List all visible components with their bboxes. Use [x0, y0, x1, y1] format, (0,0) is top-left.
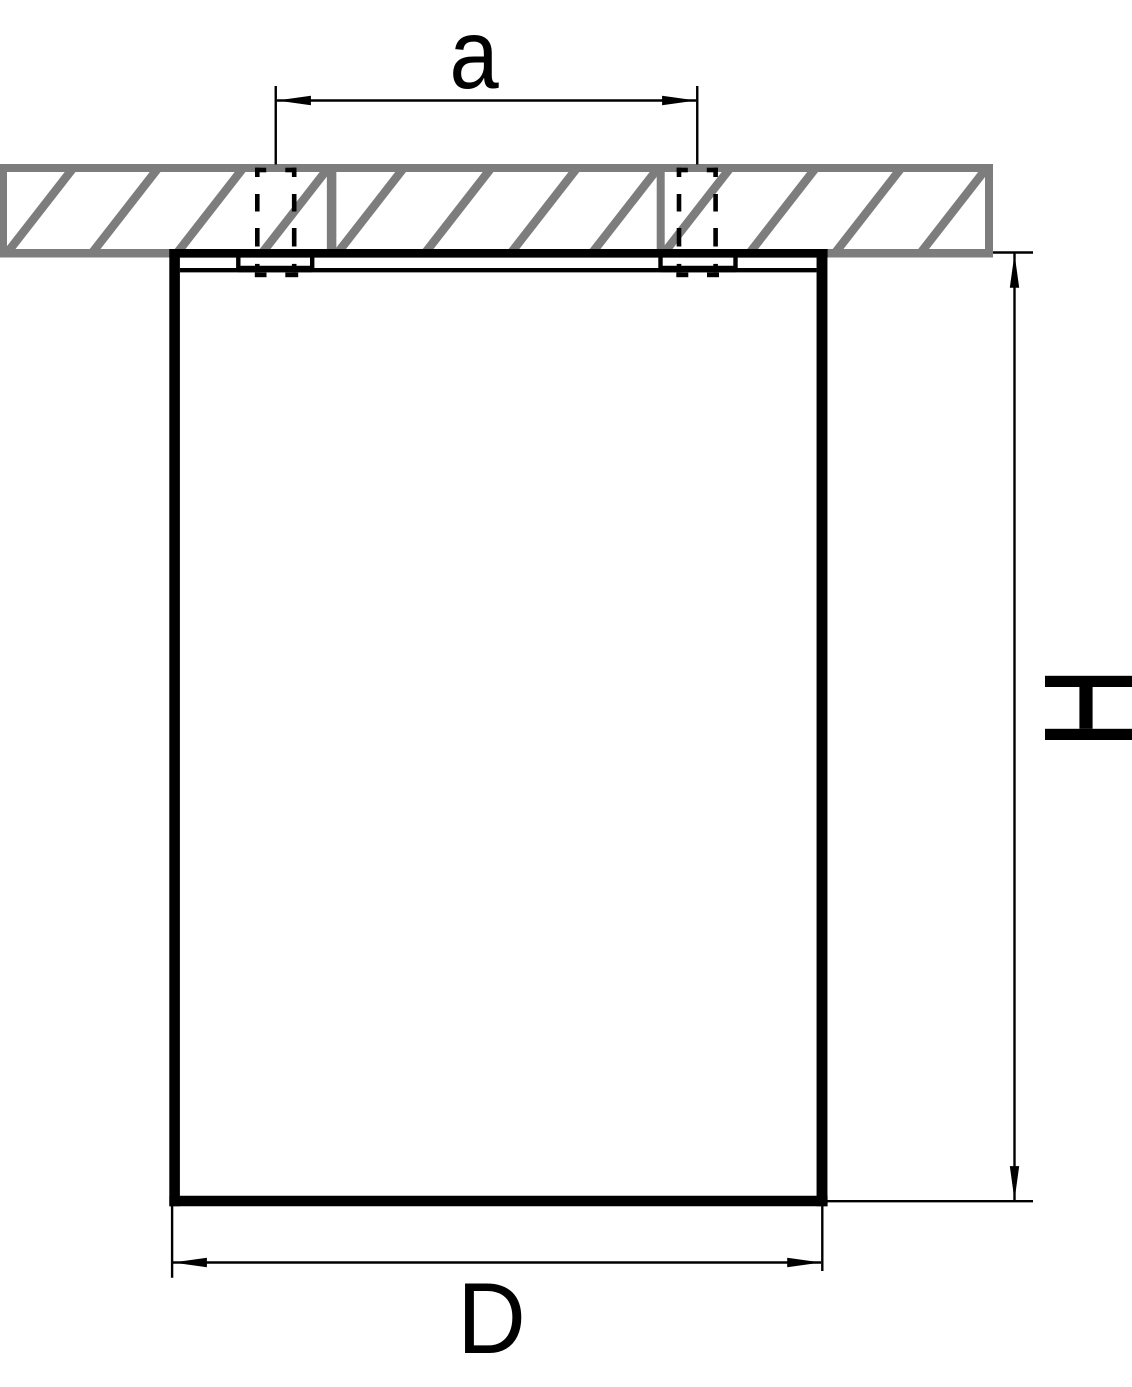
svg-text:D: D — [457, 1261, 526, 1374]
svg-text:a: a — [449, 0, 499, 109]
